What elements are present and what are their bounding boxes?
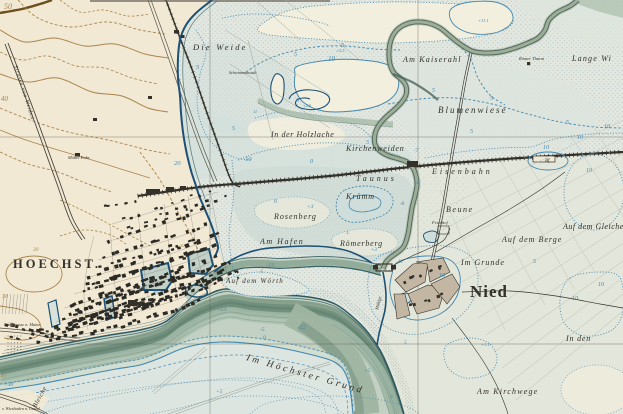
svg-text:-12: -12	[297, 324, 306, 331]
svg-text:Bf.: Bf.	[545, 159, 551, 164]
svg-text:5: 5	[232, 126, 235, 132]
svg-text:40: 40	[1, 95, 9, 103]
svg-text:10: 10	[598, 282, 604, 288]
svg-text:5: 5	[533, 259, 536, 265]
svg-text:5: 5	[470, 129, 473, 135]
svg-text:5: 5	[432, 88, 435, 94]
svg-text:10: 10	[543, 145, 549, 151]
svg-text:20: 20	[174, 160, 181, 167]
svg-text:Kirchenweiden: Kirchenweiden	[345, 144, 405, 153]
svg-text:30: 30	[1, 294, 8, 300]
svg-text:Im Grunde: Im Grunde	[460, 258, 505, 267]
svg-text:-13: -13	[218, 306, 227, 313]
svg-text:30: 30	[32, 247, 39, 253]
svg-text:-8: -8	[415, 181, 420, 186]
svg-text:10: 10	[245, 156, 252, 163]
svg-text:Nied: Nied	[470, 282, 508, 301]
svg-text:0: 0	[296, 98, 299, 104]
svg-text:11: 11	[398, 260, 403, 265]
svg-text:Taunus: Taunus	[356, 174, 397, 183]
svg-text:+2.5: +2.5	[303, 103, 311, 108]
svg-text:Auf dem Gleiche: Auf dem Gleiche	[562, 222, 623, 231]
svg-text:+30: +30	[4, 382, 13, 388]
svg-text:Eisenbahn: Eisenbahn	[431, 167, 493, 176]
svg-text:5: 5	[390, 394, 393, 400]
svg-text:Friedhof: Friedhof	[431, 220, 448, 225]
svg-text:5: 5	[566, 120, 569, 126]
svg-text:30: 30	[7, 322, 14, 328]
svg-text:+1.1: +1.1	[481, 342, 490, 347]
svg-text:Römer Thurm: Römer Thurm	[518, 56, 545, 61]
svg-text:-5: -5	[260, 327, 265, 333]
svg-text:Schwimmanstalt: Schwimmanstalt	[229, 70, 257, 75]
svg-text:50: 50	[4, 2, 12, 11]
svg-text:10: 10	[572, 296, 578, 302]
svg-text:-13: -13	[266, 263, 274, 269]
svg-text:Die Weide: Die Weide	[192, 42, 248, 52]
svg-text:-8: -8	[400, 202, 405, 207]
svg-text:-7: -7	[414, 149, 419, 154]
svg-text:Lange Wi: Lange Wi	[571, 54, 612, 63]
svg-text:10: 10	[439, 273, 445, 279]
svg-text:Am Kaiserahl: Am Kaiserahl	[402, 55, 462, 64]
svg-text:30: 30	[180, 243, 185, 248]
svg-text:10: 10	[604, 124, 610, 130]
svg-text:Auf dem Wörth: Auf dem Wörth	[225, 277, 284, 285]
svg-text:5: 5	[404, 340, 407, 346]
svg-text:+3: +3	[307, 204, 314, 210]
svg-text:In der Holzlache: In der Holzlache	[270, 130, 334, 139]
svg-text:-5: -5	[259, 270, 264, 275]
svg-text:Blumenwiese: Blumenwiese	[438, 105, 508, 115]
svg-text:v. Wiesbaden n. Castel: v. Wiesbaden n. Castel	[2, 406, 41, 411]
svg-text:5: 5	[366, 140, 369, 146]
svg-text:+5: +5	[364, 368, 371, 374]
svg-text:10: 10	[328, 55, 336, 63]
svg-text:30: 30	[153, 290, 159, 295]
svg-text:0: 0	[274, 199, 277, 205]
svg-text:Beune: Beune	[446, 205, 474, 214]
svg-text:Römerberg: Römerberg	[339, 239, 383, 248]
svg-text:0: 0	[310, 159, 313, 165]
svg-text:11: 11	[253, 109, 257, 114]
svg-text:Am Hafen: Am Hafen	[259, 237, 304, 246]
svg-text:20: 20	[139, 287, 145, 292]
svg-text:10: 10	[577, 135, 583, 141]
svg-text:+2.5: +2.5	[336, 48, 345, 53]
svg-text:Krümm: Krümm	[345, 192, 375, 201]
svg-text:In den: In den	[565, 334, 591, 343]
svg-text:5: 5	[490, 96, 493, 102]
svg-text:+5: +5	[216, 389, 223, 395]
svg-text:35: 35	[0, 373, 6, 379]
svg-text:5: 5	[294, 52, 297, 58]
svg-text:+11.1: +11.1	[478, 18, 489, 23]
svg-text:Am Kirchwege: Am Kirchwege	[476, 387, 538, 396]
svg-text:0: 0	[263, 335, 266, 341]
svg-text:Auf dem Berge: Auf dem Berge	[501, 235, 562, 244]
svg-text:10: 10	[586, 168, 592, 174]
svg-text:Möbel Fabr.: Möbel Fabr.	[67, 155, 90, 160]
svg-text:Rosenberg: Rosenberg	[273, 212, 317, 221]
svg-text:+3: +3	[371, 248, 377, 253]
svg-text:1.: 1.	[346, 231, 350, 236]
svg-text:3.5: 3.5	[85, 258, 91, 263]
